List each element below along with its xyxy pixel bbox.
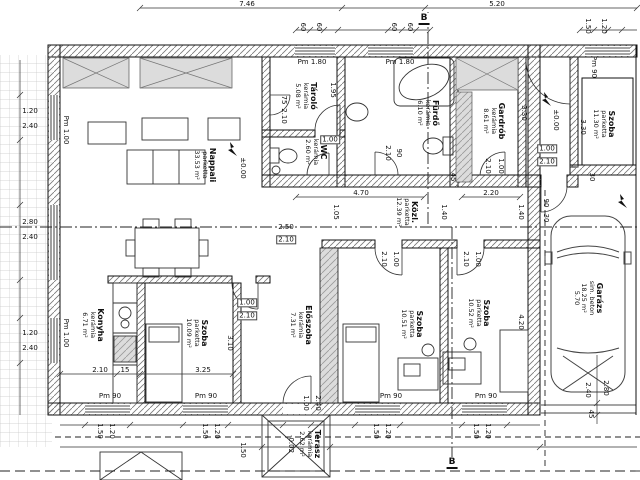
dimension-text: Pm 1.00: [62, 116, 70, 145]
dimension-text: 2.40: [22, 233, 38, 241]
dimension-text: 1.40: [517, 204, 525, 220]
dimension-text: 1.00: [302, 395, 310, 411]
dimension-text: 1.20: [484, 423, 492, 439]
dimension-text: 1.20: [22, 329, 38, 337]
room-label-f-rd-: Fürdőkerámia6.10 m²: [416, 100, 440, 126]
dimension-text: 2.80: [22, 218, 38, 226]
dimension-text: 1.05: [332, 204, 340, 220]
dimension-text: 2.10: [92, 366, 108, 374]
dimension-text: 15: [121, 366, 130, 374]
stoop: [100, 452, 182, 480]
room-label-szoba: Szobaparketta11.30 m²: [592, 109, 616, 139]
dimension-text: 2.40: [22, 122, 38, 130]
dimension-text: 30: [588, 173, 596, 182]
dimension-text: Pm 90: [590, 56, 598, 78]
dimension-text: 2.10: [384, 145, 392, 161]
room-label-szoba: Szobaparketta10.09 m²: [185, 318, 209, 348]
dimension-text: 2.10: [484, 158, 492, 174]
dimension-text: 1.50: [472, 423, 480, 439]
dimension-text: -0.02: [287, 435, 295, 453]
dimension-text: 1.00: [237, 298, 257, 307]
dimension-text: 1.00: [497, 158, 505, 174]
dimension-text: ±0.00: [239, 157, 247, 178]
dimension-text: Pm 90: [195, 392, 217, 400]
dimension-text: 5.20: [489, 0, 505, 8]
dimension-text: 1.00: [537, 144, 557, 153]
dimension-text: 45: [587, 410, 595, 419]
dimension-text: 60: [299, 23, 307, 32]
dimension-text: 1.00: [320, 135, 340, 144]
dimension-text: 2.10: [380, 251, 388, 267]
dimension-text: 2.80: [602, 380, 610, 396]
dimension-text: 1.95: [329, 82, 337, 98]
dimension-text: ±0.00: [552, 109, 560, 130]
room-label-konyha: Konyhakerámia6.71 m²: [81, 308, 105, 342]
dimension-text: 1.40: [440, 204, 448, 220]
dimension-text: Pm 1.80: [298, 58, 327, 66]
dimension-text: 3.30: [579, 119, 587, 135]
dimension-text: 60: [315, 23, 323, 32]
dimension-text: 2.10: [237, 311, 257, 320]
dimension-text: Pm 90: [99, 392, 121, 400]
dimension-text: 1.20: [108, 423, 116, 439]
room-label-t-rol-: Tárolókerámia5.08 m²: [294, 82, 318, 110]
room-label-szoba: Szobaparketta10.51 m²: [400, 309, 424, 339]
dimension-text: 4.70: [353, 189, 369, 197]
room-label-k-zl-: Közl.parketta12.39 m²: [395, 197, 419, 227]
room-label-gar-zs: Garázssim. beton18.25 m²5.70: [572, 281, 604, 315]
dimension-text: 1.50: [201, 423, 209, 439]
room-label-szoba: Szobaparketta10.52 m²: [467, 298, 491, 328]
dimension-text: 2.20: [483, 189, 499, 197]
dimension-text: 3.10: [226, 335, 234, 351]
dimension-text: 2.10: [462, 251, 470, 267]
dimension-text: 75: [280, 96, 288, 105]
section-marker: B: [447, 457, 458, 469]
dimension-text: 45: [449, 173, 457, 182]
dimension-text: Pm 90: [380, 392, 402, 400]
dimension-text: 1.20: [384, 423, 392, 439]
dimension-text: 1.20: [213, 423, 221, 439]
living-room-furniture: [88, 118, 240, 277]
wc-fixtures: [270, 148, 297, 174]
shaft-wall: [320, 248, 338, 403]
dimension-text: 1.50: [239, 442, 247, 458]
dimension-text: 60: [406, 23, 414, 32]
dimension-text: 1.00: [392, 251, 400, 267]
section-marker: B: [419, 13, 430, 25]
dimension-text: 2.10: [276, 235, 296, 244]
room-label-terasz: Teraszkerámia2.62 m²: [298, 430, 322, 459]
dimension-text: 1.20: [22, 107, 38, 115]
dimension-text: Pm 1.80: [386, 58, 415, 66]
dimension-text: 1.50: [372, 423, 380, 439]
dimension-text: 2.50: [278, 223, 294, 231]
room-label-gardr-b: Gardróbkerámia8.61 m²: [482, 103, 506, 140]
dimension-text: Pm 1.00: [62, 319, 70, 348]
dimension-text: 2.40: [314, 395, 322, 411]
floor-plan-canvas: Nappaliparketta33.53 m²Tárolókerámia5.08…: [0, 0, 640, 480]
dimension-text: 3.25: [195, 366, 211, 374]
dimension-text: 90: [395, 149, 403, 158]
dimension-text: 7.46: [239, 0, 255, 8]
dimension-text: 4.20: [517, 314, 525, 330]
dimension-text: 1.50: [584, 18, 592, 34]
dimension-text: 2.40: [22, 344, 38, 352]
dimension-text: 1.50: [96, 423, 104, 439]
dimension-text: Pm 90: [475, 392, 497, 400]
dimension-text: 2.10: [537, 157, 557, 166]
dimension-text: 30: [542, 214, 550, 223]
dimension-text: 3.30: [520, 105, 528, 121]
dimension-text: 2.40: [584, 382, 592, 398]
dimension-text: 60: [390, 23, 398, 32]
room-label-nappali: Nappaliparketta33.53 m²: [193, 148, 217, 182]
dimension-text: 2.10: [280, 108, 288, 124]
dimension-text: 1.00: [474, 251, 482, 267]
dimension-text: 1.20: [600, 18, 608, 34]
dimension-text: 90: [542, 199, 550, 208]
room-label-el-szoba: Előszobakerámia7.31 m²: [289, 305, 313, 345]
kitchen-counter: [113, 283, 137, 403]
